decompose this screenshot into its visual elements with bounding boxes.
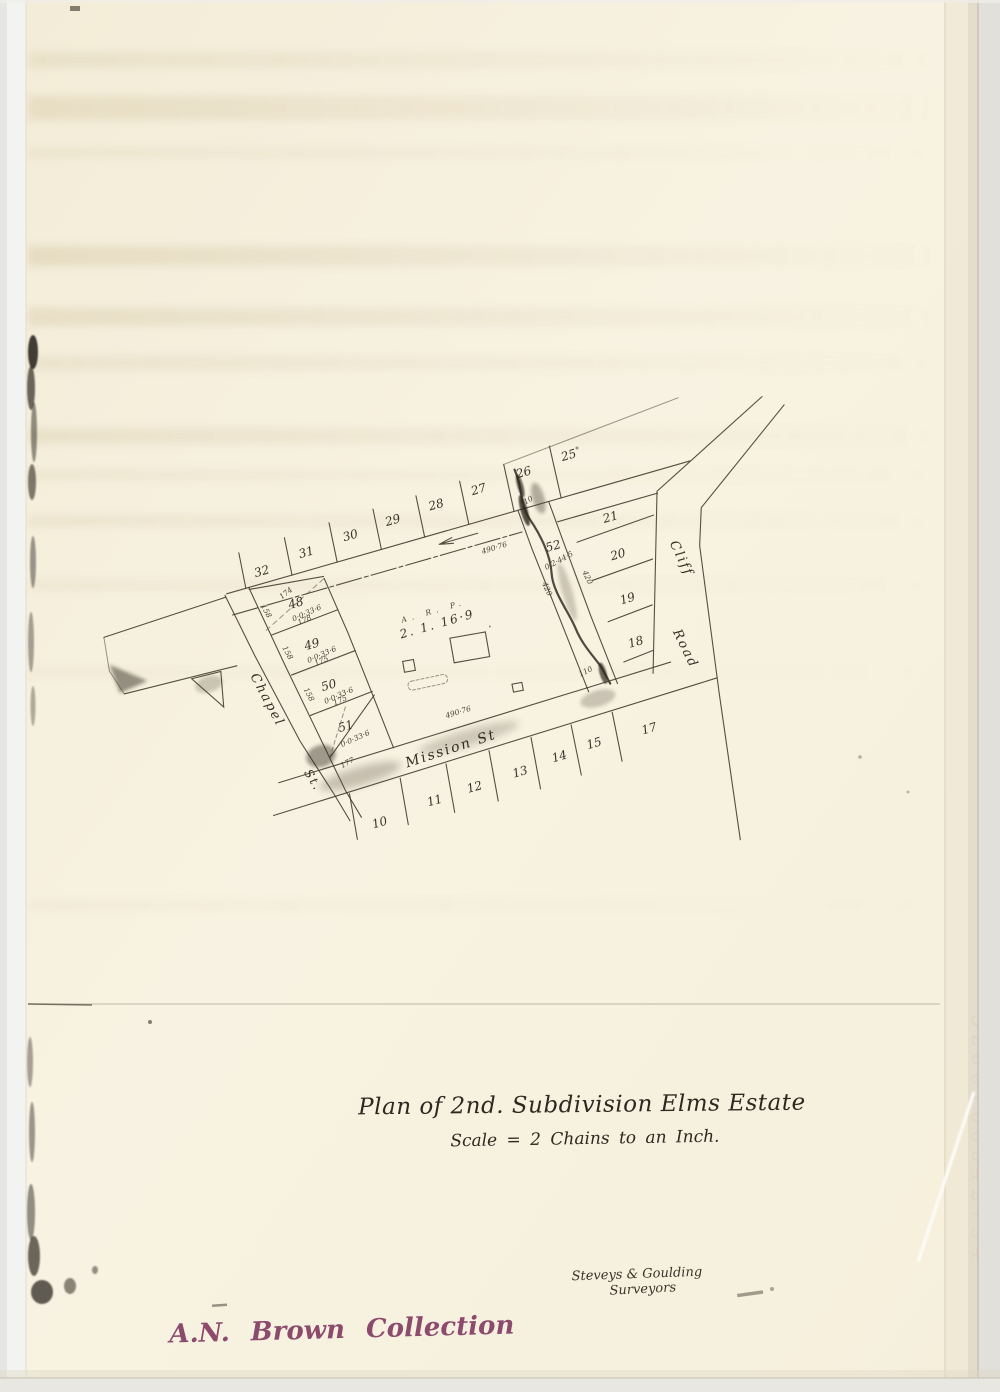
paper-background xyxy=(0,0,1000,1392)
plan-scan-svg: 490·76 32 31 30 29 28 27 26 25 Cliff Roa… xyxy=(0,0,1000,1392)
scanned-plan-page: 490·76 32 31 30 29 28 27 26 25 Cliff Roa… xyxy=(0,0,1000,1392)
plan-title: Plan of 2nd. Subdivision Elms Estate xyxy=(357,1090,806,1121)
